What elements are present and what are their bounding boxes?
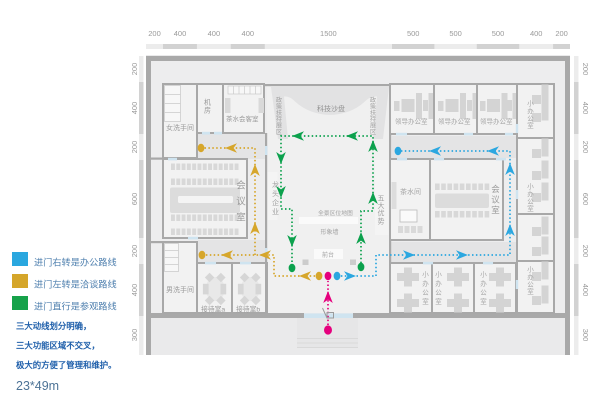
svg-text:400: 400 xyxy=(242,29,255,38)
svg-text:400: 400 xyxy=(130,284,139,297)
svg-text:科技沙盘: 科技沙盘 xyxy=(317,104,345,113)
svg-text:政策扶持展区: 政策扶持展区 xyxy=(370,96,376,136)
svg-text:进门左转是洽谈路线: 进门左转是洽谈路线 xyxy=(34,279,117,290)
svg-text:300: 300 xyxy=(581,329,590,342)
svg-text:500: 500 xyxy=(407,29,420,38)
svg-text:小办公室: 小办公室 xyxy=(422,270,429,306)
svg-text:1500: 1500 xyxy=(320,29,337,38)
svg-text:200: 200 xyxy=(555,29,568,38)
svg-text:400: 400 xyxy=(208,29,221,38)
svg-text:进门直行是参观路线: 进门直行是参观路线 xyxy=(34,301,117,312)
svg-text:领导办公室: 领导办公室 xyxy=(480,117,513,126)
svg-text:600: 600 xyxy=(581,193,590,206)
svg-text:机房: 机房 xyxy=(204,98,211,115)
svg-text:600: 600 xyxy=(130,193,139,206)
svg-text:会议室: 会议室 xyxy=(236,180,246,224)
svg-text:200: 200 xyxy=(148,29,161,38)
svg-text:小办公室: 小办公室 xyxy=(527,182,534,213)
svg-text:领导办公室: 领导办公室 xyxy=(395,117,428,126)
svg-text:400: 400 xyxy=(581,284,590,297)
svg-text:500: 500 xyxy=(492,29,505,38)
svg-text:极大的方便了管理和维护。: 极大的方便了管理和维护。 xyxy=(16,360,117,370)
svg-text:400: 400 xyxy=(130,102,139,115)
svg-text:200: 200 xyxy=(130,245,139,258)
svg-text:小办公室: 小办公室 xyxy=(527,265,534,296)
svg-text:500: 500 xyxy=(449,29,462,38)
svg-text:400: 400 xyxy=(174,29,187,38)
svg-text:小办公室: 小办公室 xyxy=(480,270,487,306)
svg-text:200: 200 xyxy=(581,141,590,154)
svg-text:进门右转是办公路线: 进门右转是办公路线 xyxy=(34,257,117,268)
svg-text:400: 400 xyxy=(581,102,590,115)
svg-text:接待室b: 接待室b xyxy=(236,305,260,314)
svg-text:小办公室: 小办公室 xyxy=(435,270,442,306)
svg-text:前台: 前台 xyxy=(322,251,334,259)
svg-text:三大动线划分明确，: 三大动线划分明确， xyxy=(16,321,91,331)
svg-text:200: 200 xyxy=(130,141,139,154)
svg-text:23*49m: 23*49m xyxy=(16,379,59,393)
svg-text:五大优势: 五大优势 xyxy=(378,195,385,226)
svg-text:领导办公室: 领导办公室 xyxy=(438,117,471,126)
svg-text:形象墙: 形象墙 xyxy=(321,228,339,236)
svg-text:全景区位地图: 全景区位地图 xyxy=(318,209,353,217)
svg-text:200: 200 xyxy=(581,63,590,76)
svg-text:小办公室: 小办公室 xyxy=(527,99,534,130)
svg-text:男洗手间: 男洗手间 xyxy=(166,285,194,294)
svg-text:200: 200 xyxy=(130,63,139,76)
svg-text:三大功能区域不交叉，: 三大功能区域不交叉， xyxy=(16,341,100,351)
svg-text:政策扶持展区: 政策扶持展区 xyxy=(276,96,282,136)
svg-text:接待室a: 接待室a xyxy=(201,305,225,314)
svg-text:茶水会客室: 茶水会客室 xyxy=(226,114,259,123)
svg-text:会议室: 会议室 xyxy=(491,184,500,215)
svg-text:女洗手间: 女洗手间 xyxy=(166,123,194,132)
svg-text:300: 300 xyxy=(130,329,139,342)
svg-text:400: 400 xyxy=(530,29,543,38)
svg-text:茶水间: 茶水间 xyxy=(400,187,421,196)
svg-text:200: 200 xyxy=(581,245,590,258)
